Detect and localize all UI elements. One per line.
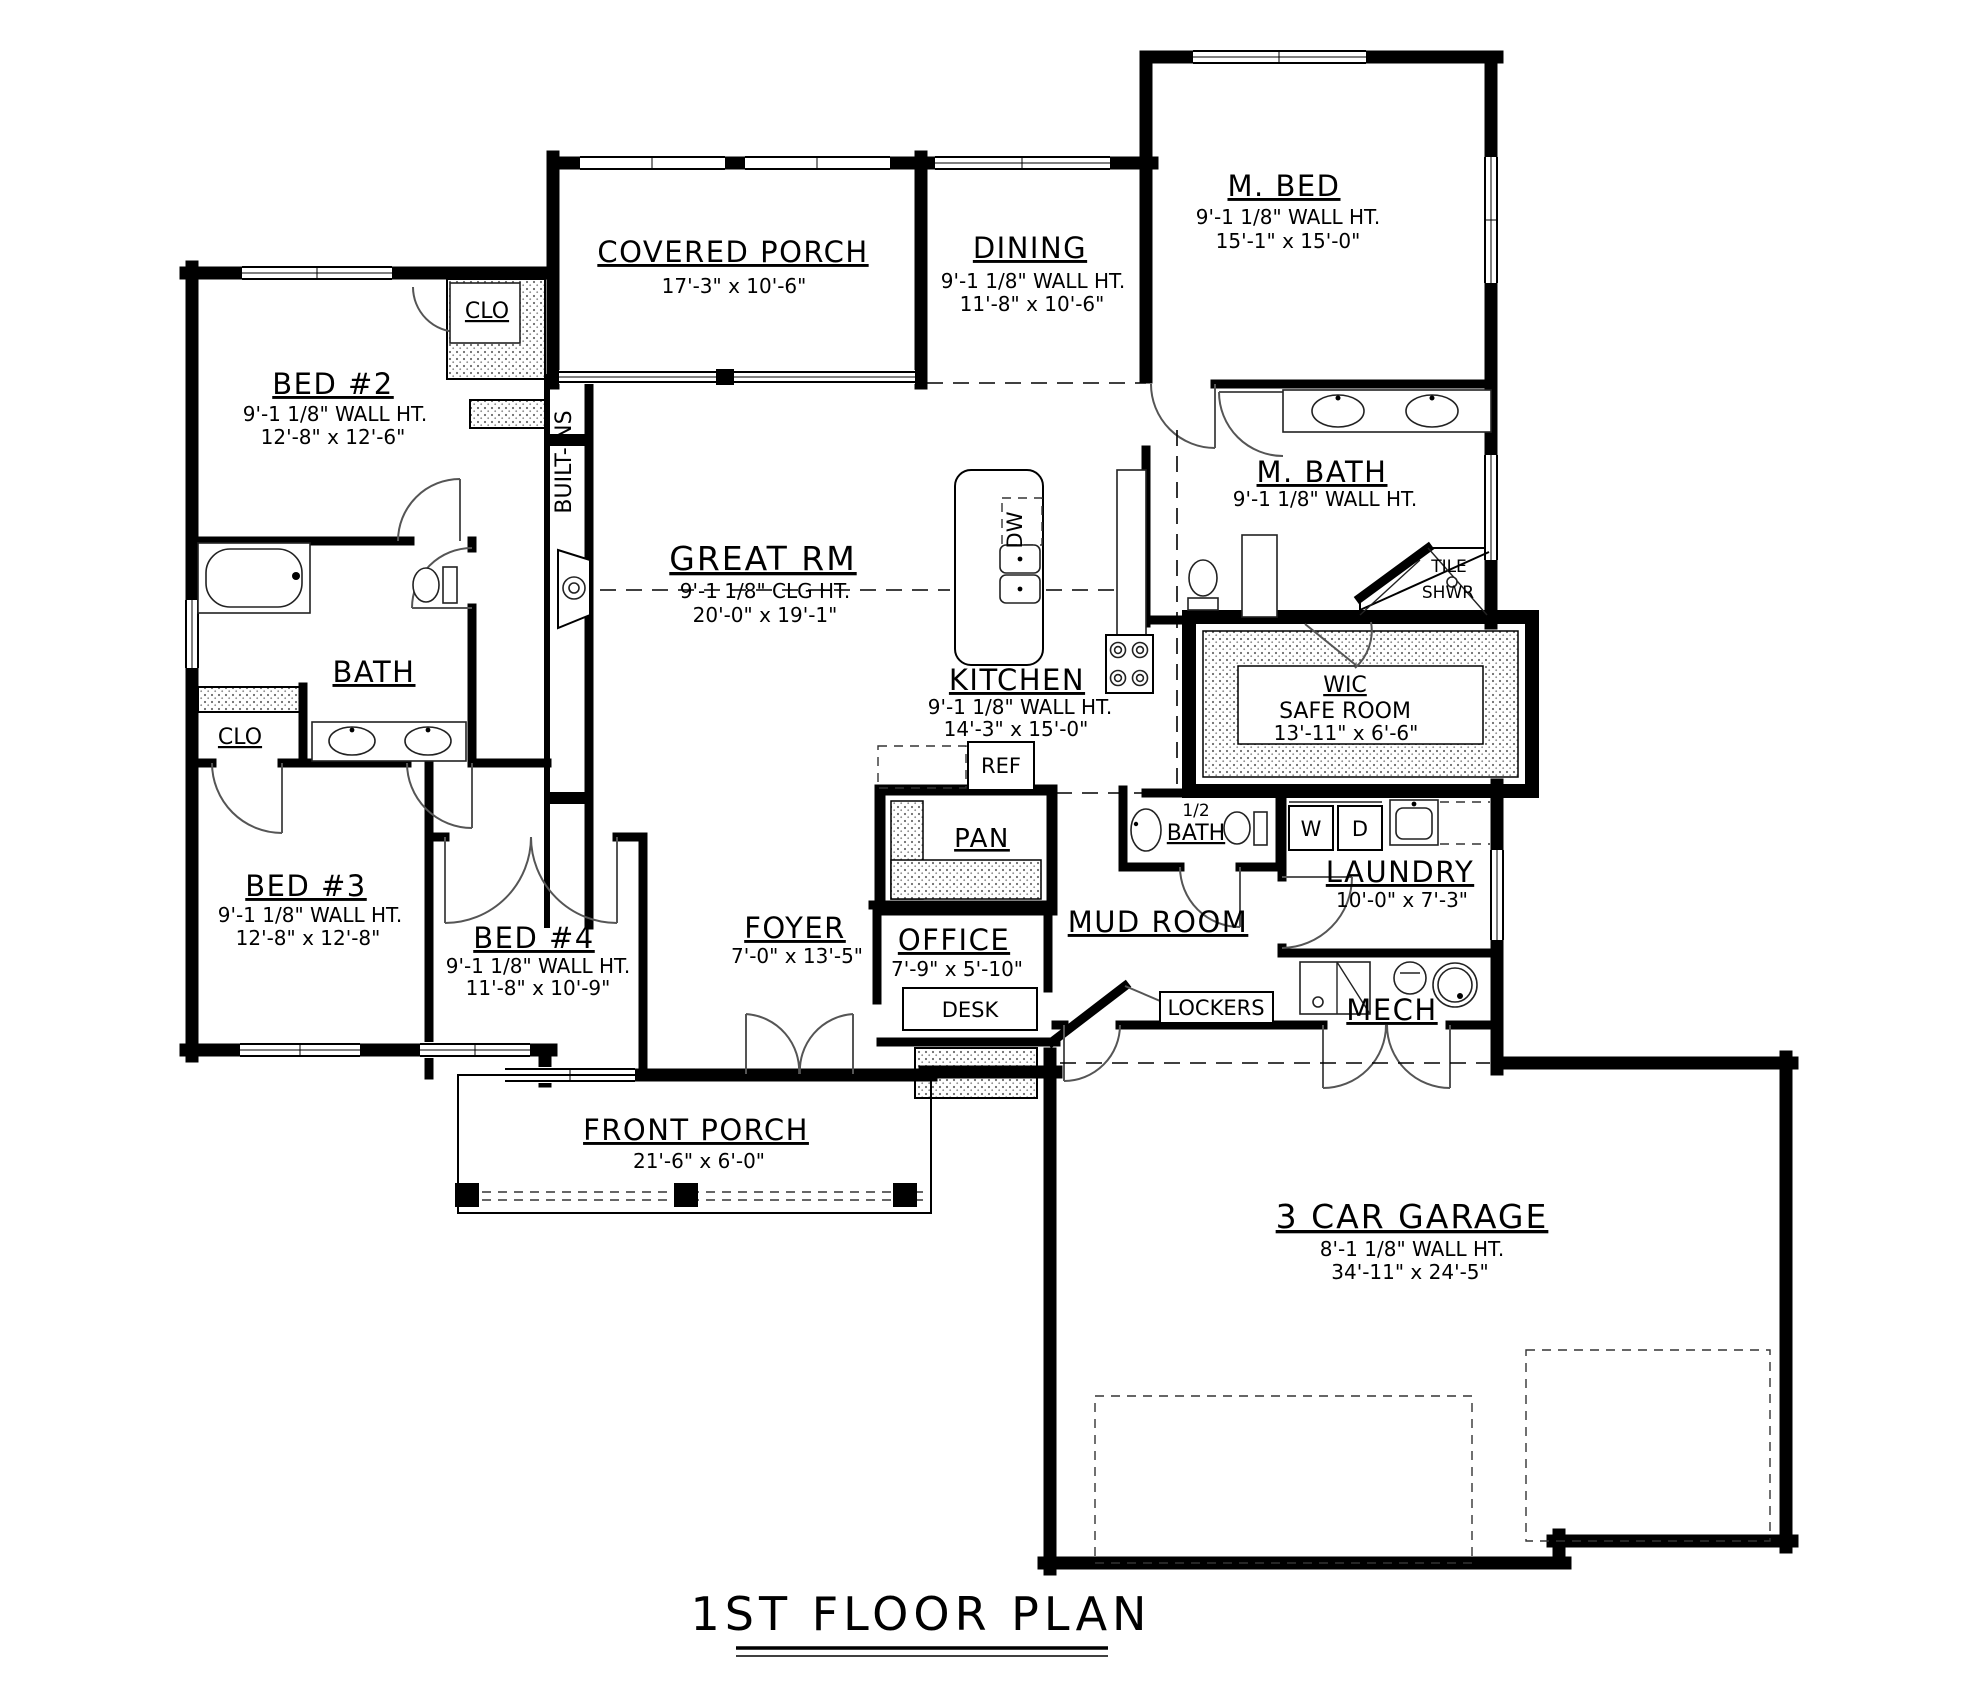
built-ins-label: BUILT-INS <box>552 410 577 513</box>
mech-garage-door-left <box>1323 1025 1386 1088</box>
bed2-label: BED #2 <box>272 367 394 401</box>
mech-label: MECH <box>1346 993 1437 1027</box>
great-rm-dim: 20'-0" x 19'-1" <box>693 603 838 627</box>
office-d: 7'-9" x 5'-10" <box>891 957 1023 981</box>
window <box>1489 850 1505 940</box>
desk-label: DESK <box>942 998 1000 1022</box>
kitchen-dim: 14'-3" x 15'-0" <box>944 717 1089 741</box>
covered-porch-dim: 17'-3" x 10'-6" <box>662 274 807 298</box>
kitchen-counter-dashed <box>878 746 966 788</box>
bathtub-icon <box>198 543 310 613</box>
bed4-door-right <box>531 837 617 923</box>
kitchen-counter <box>1117 470 1146 660</box>
hall-closet-hatch <box>198 687 303 712</box>
foyer-dim: 7'-0" x 13'-5" <box>731 944 863 968</box>
garage-ht: 8'-1 1/8" WALL HT. <box>1320 1237 1505 1261</box>
patio-window-band <box>559 369 915 385</box>
m-bed-dim: 15'-1" x 15'-0" <box>1216 229 1361 253</box>
foyer-label: FOYER <box>744 911 846 945</box>
porch-opening <box>580 155 725 171</box>
bath-vanity <box>312 722 466 761</box>
bed4-label: BED #4 <box>473 921 595 955</box>
linen-cabinet <box>1242 535 1277 617</box>
bed2-dim: 12'-8" x 12'-6" <box>261 425 406 449</box>
bed3-door <box>407 763 472 828</box>
front-porch-dim: 21'-6" x 6'-0" <box>633 1149 765 1173</box>
bed3-dim: 12'-8" x 12'-8" <box>236 926 381 950</box>
great-rm-label: GREAT RM <box>669 539 856 578</box>
garage-door-apron <box>1526 1350 1770 1541</box>
garage-service-door <box>1064 1025 1120 1081</box>
lockers-label: LOCKERS <box>1167 996 1264 1020</box>
plan-title: 1ST FLOOR PLAN <box>691 1587 1152 1641</box>
ref-label: REF <box>981 754 1021 778</box>
garage-label: 3 CAR GARAGE <box>1276 1197 1549 1236</box>
floor-plan-sheet: COVERED PORCH 17'-3" x 10'-6" M. BED 9'-… <box>0 0 1969 1691</box>
m-bed-door <box>1151 384 1215 448</box>
washer-label: W <box>1301 817 1322 841</box>
range-icon <box>1106 635 1153 693</box>
kitchen-island <box>955 470 1043 665</box>
safe-room-dim: 13'-11" x 6'-6" <box>1274 721 1419 745</box>
covered-porch-label: COVERED PORCH <box>597 235 868 269</box>
m-bath-ht: 9'-1 1/8" WALL HT. <box>1233 487 1418 511</box>
bed4-ht: 9'-1 1/8" WALL HT. <box>446 954 631 978</box>
floor-plan-drawing: COVERED PORCH 17'-3" x 10'-6" M. BED 9'-… <box>0 0 1969 1691</box>
bed4-door-left <box>445 837 531 923</box>
kitchen-label: KITCHEN <box>949 663 1085 697</box>
m-bed-label: M. BED <box>1227 169 1340 203</box>
front-porch-label: FRONT PORCH <box>583 1113 809 1147</box>
mud-room-label: MUD ROOM <box>1068 905 1249 939</box>
hall-clo-label: CLO <box>218 725 262 750</box>
bed3-label: BED #3 <box>245 869 367 903</box>
front-door-left <box>746 1014 799 1075</box>
m-bed-ht: 9'-1 1/8" WALL HT. <box>1196 205 1381 229</box>
built-ins-divider <box>549 792 587 804</box>
laundry-label: LAUNDRY <box>1326 855 1474 889</box>
tile-shwr-label2: SHWR <box>1422 583 1474 603</box>
wic-label: WIC <box>1323 673 1367 698</box>
fireplace-icon <box>558 550 590 628</box>
window <box>1483 157 1499 283</box>
window <box>1483 455 1499 560</box>
dw-label: DW <box>1003 511 1027 548</box>
window <box>242 265 392 281</box>
window <box>935 155 1110 171</box>
office-label: OFFICE <box>898 923 1010 957</box>
bed2-door <box>398 479 460 541</box>
dining-ht: 9'-1 1/8" WALL HT. <box>941 269 1126 293</box>
bed2-clo-label: CLO <box>465 299 509 324</box>
garage-door-apron <box>1095 1396 1472 1563</box>
toilet-icon <box>1224 812 1267 845</box>
sheet-title: 1ST FLOOR PLAN <box>691 1587 1152 1656</box>
laundry-sink-icon <box>1390 800 1490 845</box>
hall-storage-hatch <box>470 400 545 428</box>
half-bath-sink-icon <box>1131 809 1161 851</box>
front-door-right <box>800 1014 853 1075</box>
bed4-dim: 11'-8" x 10'-9" <box>466 976 611 1000</box>
great-rm-ht: 9'-1 1/8" CLG HT. <box>680 579 850 603</box>
half-bath-label2: BATH <box>1167 821 1225 846</box>
m-bath-door <box>1219 392 1283 456</box>
kitchen-ht: 9'-1 1/8" WALL HT. <box>928 695 1113 719</box>
dining-label: DINING <box>973 231 1087 265</box>
garage-dim: 34'-11" x 24'-5" <box>1331 1260 1488 1284</box>
tile-shwr-label1: TILE <box>1430 557 1467 577</box>
dining-dim: 11'-8" x 10'-6" <box>960 292 1105 316</box>
pantry-hatch-bottom <box>891 860 1041 899</box>
bed3-ht: 9'-1 1/8" WALL HT. <box>218 903 403 927</box>
dryer-label: D <box>1352 817 1368 841</box>
toilet-icon <box>413 567 457 603</box>
toilet-icon <box>1188 560 1218 610</box>
mech-garage-door-right <box>1387 1025 1450 1088</box>
window <box>1193 49 1366 65</box>
hall-closet-door <box>212 763 282 833</box>
porch-opening <box>745 155 890 171</box>
m-bath-label: M. BATH <box>1257 455 1388 489</box>
window <box>240 1042 360 1058</box>
half-bath-label1: 1/2 <box>1182 801 1209 821</box>
laundry-dim: 10'-0" x 7'-3" <box>1336 888 1468 912</box>
bed2-ht: 9'-1 1/8" WALL HT. <box>243 402 428 426</box>
bath-label: BATH <box>332 655 415 689</box>
window <box>420 1042 530 1058</box>
pan-label: PAN <box>954 824 1010 854</box>
master-vanity <box>1283 390 1491 432</box>
